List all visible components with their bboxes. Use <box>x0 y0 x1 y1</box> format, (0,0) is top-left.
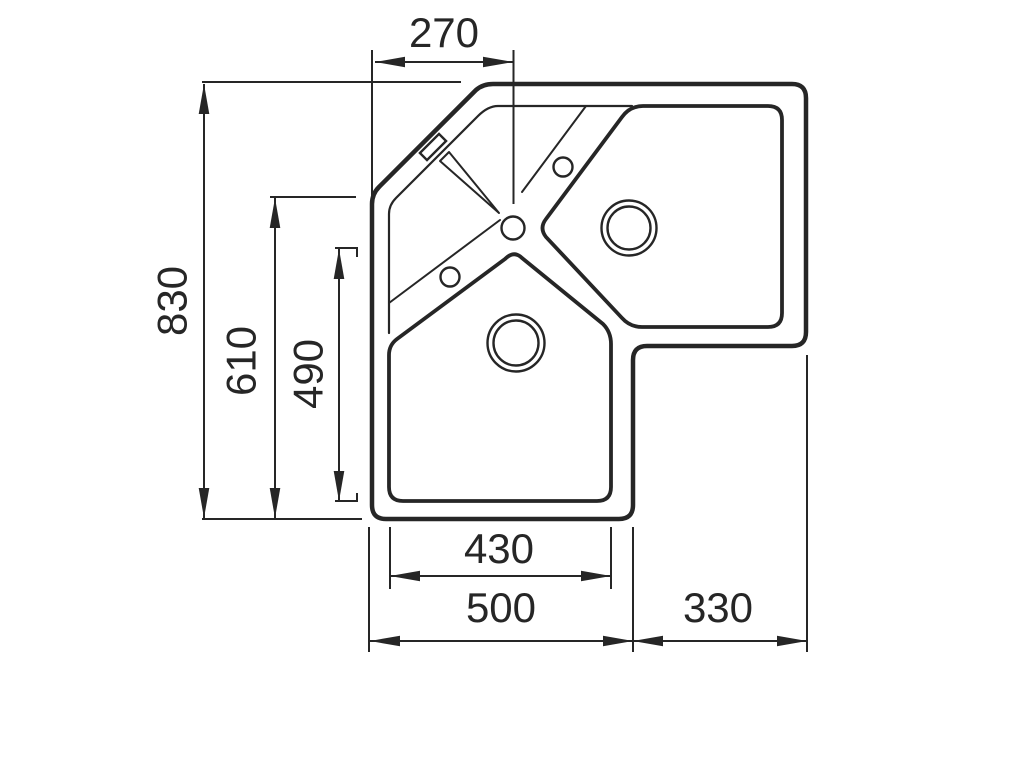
drawing-canvas: 270 830 610 490 430 <box>0 0 1024 768</box>
right-bowl <box>543 106 783 327</box>
right-bowl-outline <box>543 106 783 327</box>
right-bowl-drain-inner <box>608 207 651 250</box>
bottom-bowl <box>389 254 611 501</box>
arrowhead-right <box>483 57 513 68</box>
tap-hole <box>420 134 446 160</box>
arrowhead-top <box>199 84 210 114</box>
drainer-groove-nw-wedge <box>440 152 499 213</box>
dimension-label-330: 330 <box>683 584 753 631</box>
arrowhead-right <box>603 636 633 647</box>
drainer-groove-sw <box>389 220 500 303</box>
arrowhead-left <box>390 571 420 582</box>
bottom-bowl-drain-outer <box>488 315 545 372</box>
arrowhead-right <box>777 636 807 647</box>
dimension-label-830: 830 <box>149 266 196 336</box>
arrowhead-left <box>375 57 405 68</box>
arrowhead-right <box>581 571 611 582</box>
drainer-hole-ne <box>554 158 573 177</box>
right-bowl-drain-outer <box>602 201 657 256</box>
sink-technical-drawing: 270 830 610 490 430 <box>0 0 1024 768</box>
dimension-label-430: 430 <box>464 525 534 572</box>
arrowhead-top <box>270 198 281 228</box>
arrowhead-left <box>370 636 400 647</box>
drainer-hole-sw <box>441 268 460 287</box>
bottom-bowl-drain-inner <box>494 321 539 366</box>
corner-drain-hole <box>502 217 525 240</box>
dimension-270: 270 <box>372 9 513 196</box>
arrowhead-bottom <box>199 488 210 518</box>
dimension-430: 430 <box>390 525 611 589</box>
dimension-830: 830 <box>149 82 461 519</box>
arrowhead-bottom <box>270 488 281 518</box>
arrowhead-top <box>334 249 345 279</box>
dimension-490: 490 <box>285 248 357 501</box>
dimension-label-500: 500 <box>466 584 536 631</box>
sink-body <box>372 84 806 519</box>
arrowhead-left <box>633 636 663 647</box>
arrowhead-bottom <box>334 471 345 501</box>
dimension-label-270: 270 <box>409 9 479 56</box>
bottom-bowl-outline <box>389 254 611 501</box>
dimension-330: 330 <box>633 355 807 652</box>
dimension-label-610: 610 <box>218 326 265 396</box>
dimension-label-490: 490 <box>285 339 332 409</box>
